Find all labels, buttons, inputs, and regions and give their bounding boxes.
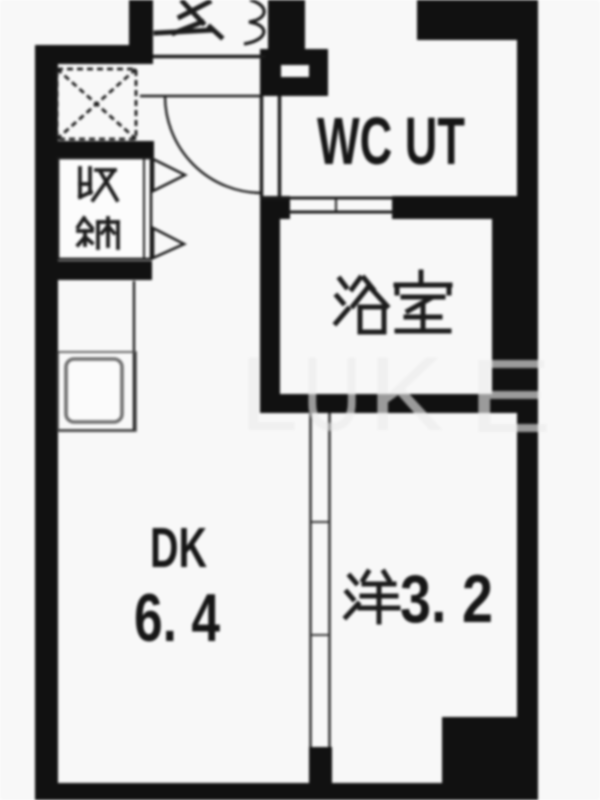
svg-text:U: U — [302, 336, 362, 453]
svg-text:WC UT: WC UT — [317, 104, 465, 179]
svg-text:DK: DK — [150, 516, 207, 580]
svg-text:6. 4: 6. 4 — [134, 580, 220, 656]
svg-text:3. 2: 3. 2 — [400, 561, 493, 637]
svg-text:L: L — [240, 336, 298, 453]
svg-text:E: E — [468, 338, 552, 455]
svg-text:K: K — [368, 336, 444, 453]
